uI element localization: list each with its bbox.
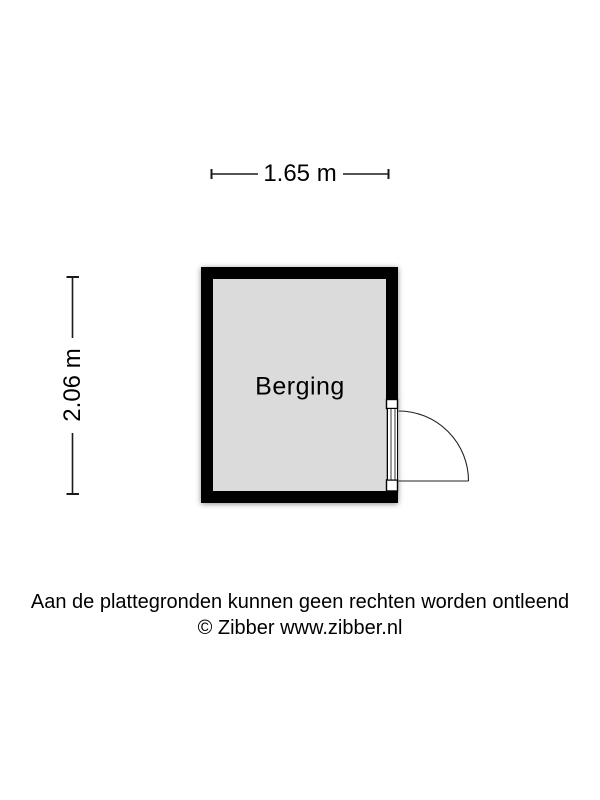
height-dimension-label: 2.06 m — [59, 348, 87, 421]
door-jamb-top — [387, 400, 398, 409]
wall-right-upper — [386, 267, 398, 400]
wall-left — [201, 267, 213, 503]
copyright-text: © Zibber www.zibber.nl — [0, 615, 600, 641]
footer: Aan de plattegronden kunnen geen rechten… — [0, 589, 600, 641]
floorplan-page: 1.65 m 2.06 m Berging Aan de plattegrond… — [0, 0, 600, 800]
disclaimer-text: Aan de plattegronden kunnen geen rechten… — [0, 589, 600, 615]
width-dimension-label: 1.65 m — [263, 160, 336, 188]
wall-bottom — [201, 491, 398, 503]
door-panel — [388, 409, 398, 481]
door-swing — [399, 411, 469, 481]
door-swing-arc — [399, 411, 469, 481]
wall-top — [201, 267, 398, 279]
room-name-label: Berging — [255, 373, 345, 402]
door-jamb-bottom — [387, 480, 398, 491]
